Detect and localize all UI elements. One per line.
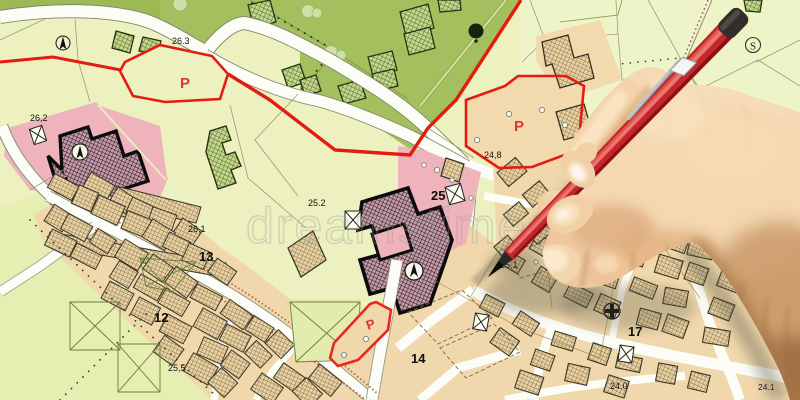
svg-text:P: P (180, 75, 190, 92)
svg-text:13: 13 (199, 249, 213, 264)
svg-text:12: 12 (154, 310, 168, 325)
svg-text:25.2: 25.2 (308, 198, 326, 208)
svg-text:26,2: 26,2 (30, 113, 48, 123)
svg-text:25,5: 25,5 (168, 363, 186, 373)
svg-text:S: S (750, 41, 756, 53)
svg-text:26.3: 26.3 (172, 36, 190, 46)
svg-text:25: 25 (431, 188, 445, 203)
svg-text:24.0: 24.0 (610, 381, 628, 391)
svg-text:dreamstime: dreamstime (246, 198, 527, 254)
svg-text:24,8: 24,8 (484, 150, 502, 160)
svg-text:26,1: 26,1 (188, 224, 206, 234)
svg-text:14: 14 (411, 351, 426, 366)
svg-text:P: P (514, 118, 524, 135)
